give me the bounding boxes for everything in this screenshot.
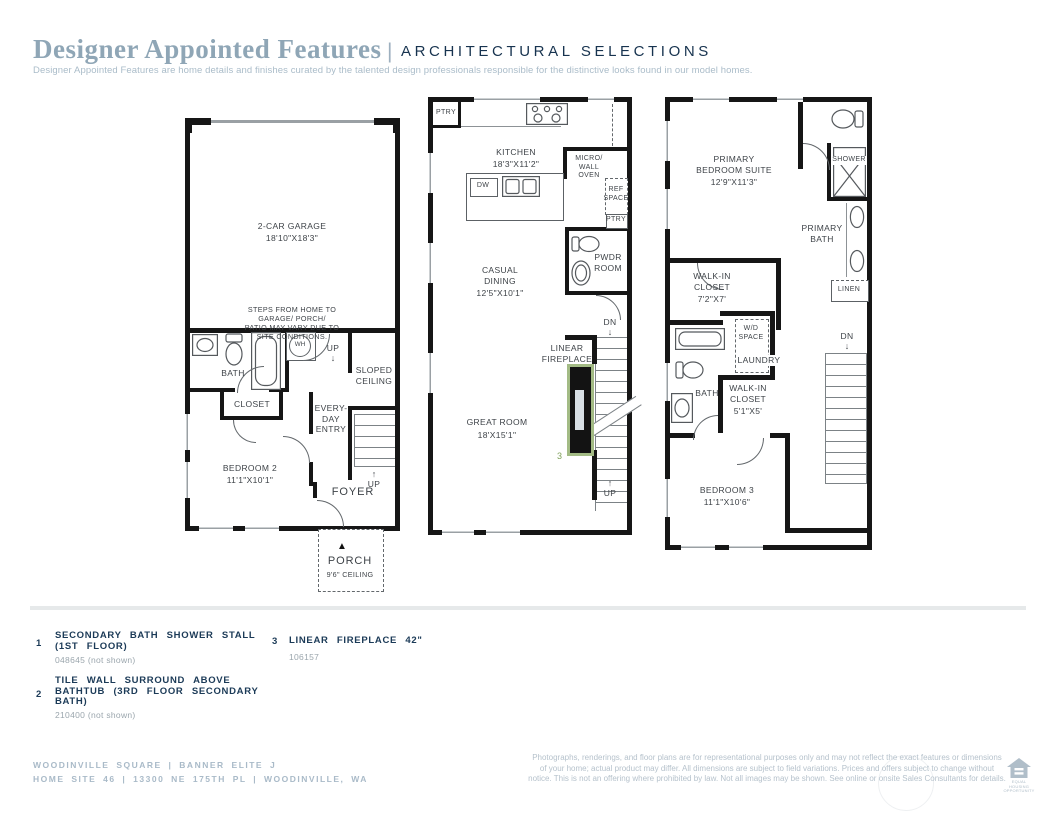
room-label-everyday-entry: EVERY- DAY ENTRY [315, 403, 348, 435]
wd-space-label: W/D SPACE [739, 325, 764, 342]
sink-icon [570, 259, 592, 287]
window [199, 526, 233, 531]
address-line: HOME SITE 46 | 13300 NE 175TH PL | WOODI… [33, 774, 368, 784]
room-dims-kitchen: 18'3"X11'2" [493, 159, 540, 170]
window [665, 363, 670, 401]
stairs [354, 414, 397, 467]
flyer-page: Designer Appointed Features | ARCHITECTU… [0, 0, 1056, 816]
room-dims-walkin2: 5'1"X5' [734, 406, 763, 417]
door-arc [803, 143, 830, 170]
legend-item-code: 210400 (not shown) [55, 710, 136, 720]
floorplan-third-floor: PRIMARY BEDROOM SUITE 12'9"X11'3" SHOWER… [665, 97, 872, 555]
sloped-ceiling-label: SLOPED CEILING [356, 365, 393, 386]
window [693, 97, 729, 102]
dishwasher-label: DW [477, 182, 489, 191]
floorplan-main-floor: PTRY KITCHEN 18'3"X11'2" DW MICRO/ WALL … [428, 97, 632, 535]
up-label: UP [604, 488, 617, 499]
room-label-porch: PORCH [328, 556, 372, 567]
toilet-icon [571, 234, 601, 254]
room-label-foyer: FOYER [332, 487, 374, 498]
window [474, 97, 540, 102]
room-label-pantry: PTRY [436, 109, 456, 118]
site-note: STEPS FROM HOME TO GARAGE/ PORCH/ PATIO … [238, 305, 346, 341]
window [185, 462, 190, 498]
page-title: Designer Appointed Features [33, 34, 382, 65]
porch-ceiling-note: 9'6" CEILING [327, 570, 374, 579]
disclaimer-text: Photographs, renderings, and floor plans… [528, 753, 1006, 785]
up-arrow-icon: ↑ [372, 470, 377, 479]
window [428, 243, 433, 283]
floorplan-first-floor: 2-CAR GARAGE 18'10"X18'3" STEPS FROM HOM… [185, 118, 400, 593]
dn-label: DN [604, 317, 617, 328]
window [729, 545, 763, 550]
legend-item-code: 106157 [289, 652, 319, 662]
room-label-primary-suite: PRIMARY BEDROOM SUITE [696, 154, 772, 175]
fireplace-label: LINEAR FIREPLACE [542, 343, 592, 364]
legend-item-number: 1 [36, 638, 41, 649]
sink-icon [849, 205, 865, 229]
equal-housing-icon [1006, 757, 1032, 779]
room-label-garage: 2-CAR GARAGE [258, 221, 326, 232]
legend-item-code: 048645 (not shown) [55, 655, 136, 665]
stairs [825, 353, 867, 484]
window [588, 97, 614, 102]
window [665, 479, 670, 517]
door-arc [283, 436, 310, 463]
window [777, 97, 803, 102]
linen-label: LINEN [838, 286, 860, 295]
door-arc [737, 438, 764, 465]
vanity-edge [846, 203, 847, 277]
room-label-closet: CLOSET [234, 399, 270, 410]
down-arrow-icon: ↓ [608, 328, 613, 337]
room-dims-walkin1: 7'2"X7' [698, 294, 727, 305]
legend-divider [30, 606, 1026, 610]
window [428, 353, 433, 393]
legend-item-title: LINEAR FIREPLACE 42" [289, 636, 509, 647]
room-label-laundry: LAUNDRY [738, 355, 781, 366]
room-dims-bedroom2: 11'1"X10'1" [227, 475, 274, 486]
room-dims-dining: 12'5"X10'1" [476, 288, 523, 299]
equal-housing-label: EQUAL HOUSING OPPORTUNITY [1002, 780, 1036, 794]
room-dims-primary-suite: 12'9"X11'3" [711, 177, 758, 188]
room-label-primary-bath: PRIMARY BATH [801, 223, 842, 244]
legend-item-number: 3 [272, 636, 277, 647]
window [185, 414, 190, 450]
ref-space-label: REF SPACE [604, 186, 629, 203]
wall [395, 118, 400, 531]
up-arrow-icon: ↑ [608, 479, 613, 488]
shower-icon [833, 147, 866, 197]
window [442, 530, 474, 535]
window [681, 545, 715, 550]
community-line: WOODINVILLE SQUARE | BANNER ELITE J [33, 760, 276, 770]
window [245, 526, 279, 531]
room-label-great-room: GREAT ROOM [467, 417, 528, 428]
room-label-pantry-small: PTRY [606, 216, 626, 225]
dn-label: DN [841, 331, 854, 342]
room-label-kitchen: KITCHEN [496, 147, 536, 158]
legend-item-title: TILE WALL SURROUND ABOVE BATHTUB (3RD FL… [55, 676, 270, 708]
room-label-bath3: BATH [695, 388, 718, 399]
window [665, 121, 670, 161]
room-dims-garage: 18'10"X18'3" [266, 233, 318, 244]
door-arc [233, 420, 256, 443]
toilet-icon [830, 107, 864, 131]
window [428, 153, 433, 193]
window [486, 530, 520, 535]
door-arc [693, 415, 718, 440]
room-label-bath: BATH [221, 368, 244, 379]
toilet-icon [675, 359, 705, 381]
page-description: Designer Appointed Features are home det… [33, 65, 753, 76]
room-label-walkin1: WALK-IN CLOSET [693, 271, 731, 292]
linear-fireplace [567, 364, 594, 456]
room-label-walkin2: WALK-IN CLOSET [729, 383, 767, 404]
sink-icon [849, 249, 865, 273]
up-label: UP [327, 343, 340, 354]
down-arrow-icon: ↓ [845, 342, 850, 351]
room-dims-great-room: 18'X15'1" [478, 430, 517, 441]
window [665, 189, 670, 229]
fireplace-option-marker: 3 [557, 451, 562, 461]
entry-marker-icon: ▲ [337, 542, 347, 552]
down-arrow-icon: ↓ [331, 354, 336, 363]
room-label-bedroom3: BEDROOM 3 [700, 485, 754, 496]
counter-edge [461, 126, 561, 127]
stove-icon [526, 103, 568, 125]
micro-wall-oven-label: MICRO/ WALL OVEN [575, 155, 602, 181]
legend-item-title: SECONDARY BATH SHOWER STALL (1ST FLOOR) [55, 631, 265, 652]
title-divider: | [387, 40, 392, 64]
bathtub-icon [675, 328, 725, 350]
shower-label: SHOWER [832, 156, 866, 165]
room-label-bedroom2: BEDROOM 2 [223, 463, 277, 474]
garage-door-line [190, 120, 395, 123]
sink-icon [671, 393, 693, 423]
category-title: ARCHITECTURAL SELECTIONS [401, 43, 712, 60]
room-label-dining: CASUAL DINING [482, 265, 518, 286]
room-dims-bedroom3: 11'1"X10'6" [704, 497, 751, 508]
legend-item-number: 2 [36, 689, 41, 700]
water-heater-label: WH [295, 340, 306, 351]
double-sink-icon [502, 176, 540, 197]
sink-icon [192, 334, 218, 356]
door-arc [317, 500, 344, 527]
room-label-powder: PWDR ROOM [594, 252, 622, 273]
